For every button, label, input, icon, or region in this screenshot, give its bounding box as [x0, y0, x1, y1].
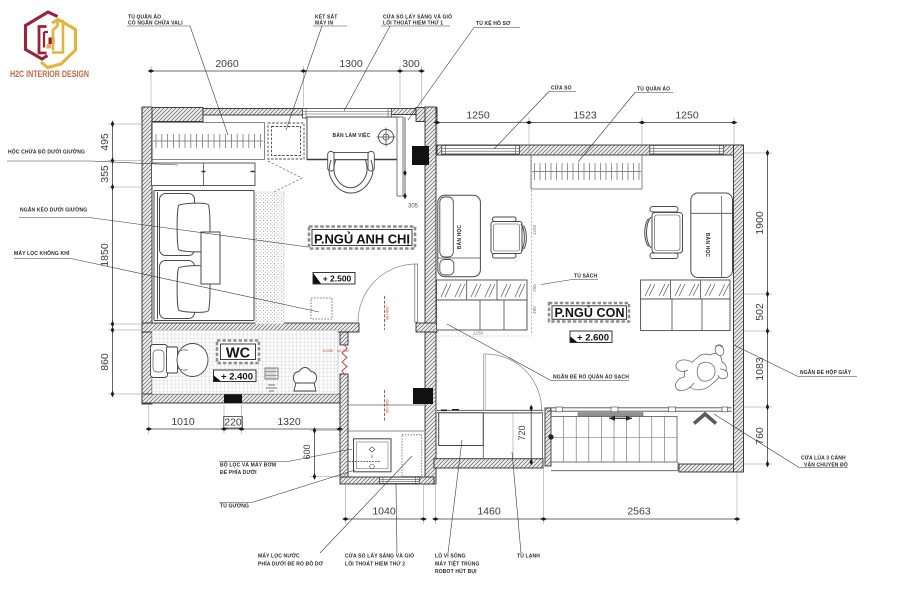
svg-text:CÓ NGĂN CHỨA VALI: CÓ NGĂN CHỨA VALI	[128, 19, 183, 27]
svg-text:MÁY LỌC KHÔNG KHÍ: MÁY LỌC KHÔNG KHÍ	[14, 249, 70, 257]
svg-text:HỘC CHỨA ĐỒ DƯỚI GIƯỜNG: HỘC CHỨA ĐỒ DƯỚI GIƯỜNG	[8, 148, 85, 156]
svg-text:ROBOT HÚT BỤI: ROBOT HÚT BỤI	[435, 568, 477, 575]
svg-text:720: 720	[517, 425, 527, 440]
svg-text:MÁY TIỆT TRÙNG: MÁY TIỆT TRÙNG	[435, 560, 480, 568]
svg-text:2060: 2060	[215, 58, 239, 70]
svg-text:ĐỂ PHÍA DƯỚI: ĐỂ PHÍA DƯỚI	[220, 468, 257, 476]
svg-text:2563: 2563	[627, 506, 651, 518]
svg-text:1200: 1200	[532, 224, 537, 235]
svg-text:TỦ GƯƠNG: TỦ GƯƠNG	[220, 503, 249, 510]
svg-text:+ 2.500: + 2.500	[323, 274, 352, 284]
svg-text:1083: 1083	[754, 357, 766, 381]
svg-text:VẬN CHUYỂN ĐỒ: VẬN CHUYỂN ĐỒ	[804, 462, 848, 469]
svg-text:BỘ LỌC VÀ MÁY BƠM: BỘ LỌC VÀ MÁY BƠM	[220, 461, 276, 469]
svg-text:220: 220	[224, 417, 242, 429]
svg-text:1850: 1850	[99, 243, 111, 267]
svg-text:CỬA LÙA 3 CÁNH: CỬA LÙA 3 CÁNH	[801, 455, 846, 462]
svg-text:CỬA SỔ: CỬA SỔ	[551, 85, 572, 92]
svg-text:BÀN HỌC: BÀN HỌC	[456, 225, 463, 250]
svg-text:1040: 1040	[372, 506, 396, 518]
svg-text:P.NGỦ ANH CHỊ: P.NGỦ ANH CHỊ	[314, 232, 410, 247]
svg-text:860: 860	[99, 353, 111, 371]
svg-text:TỦ SÁCH: TỦ SÁCH	[574, 273, 598, 280]
svg-text:H2C INTERIOR DESIGN: H2C INTERIOR DESIGN	[10, 69, 89, 79]
svg-text:LỐI THOÁT HIỂM THỨ 1: LỐI THOÁT HIỂM THỨ 1	[383, 20, 443, 27]
svg-text:1010: 1010	[171, 416, 195, 428]
svg-text:TỦ KỆ HỒ SƠ: TỦ KỆ HỒ SƠ	[476, 19, 511, 27]
svg-text:355: 355	[99, 165, 111, 183]
svg-text:BÀN HỌC: BÀN HỌC	[704, 233, 711, 258]
svg-text:305: 305	[408, 204, 419, 210]
svg-text:250: 250	[532, 284, 537, 292]
svg-text:KÉT SẮT: KÉT SẮT	[315, 13, 337, 21]
svg-text:LÒ VI SÓNG: LÒ VI SÓNG	[435, 552, 466, 560]
svg-text:1320: 1320	[277, 416, 301, 428]
svg-text:1900: 1900	[754, 211, 766, 235]
svg-text:TỦ QUẦN ÁO: TỦ QUẦN ÁO	[637, 86, 670, 93]
svg-text:502: 502	[754, 303, 766, 321]
svg-text:+ 2.600: + 2.600	[577, 332, 609, 343]
svg-text:PHÍA DƯỚI ĐỂ RỔ ĐỒ DƠ: PHÍA DƯỚI ĐỂ RỔ ĐỒ DƠ	[258, 560, 324, 568]
svg-text:MÁY IN: MÁY IN	[315, 20, 334, 27]
svg-text:-0.035: -0.035	[322, 349, 333, 353]
svg-text:P.NGỦ CON: P.NGỦ CON	[555, 305, 625, 320]
svg-text:495: 495	[99, 133, 111, 151]
svg-text:TỦ QUẦN ÁO: TỦ QUẦN ÁO	[128, 14, 161, 21]
svg-text:ĐH 600: ĐH 600	[386, 400, 390, 413]
svg-text:1460: 1460	[477, 506, 501, 518]
svg-text:MÁY LỌC NƯỚC: MÁY LỌC NƯỚC	[258, 552, 300, 560]
svg-text:CỬA SỔ LẤY SÁNG VÀ GIÓ: CỬA SỔ LẤY SÁNG VÀ GIÓ	[345, 552, 414, 560]
svg-text:1250: 1250	[473, 331, 484, 336]
svg-text:LỐI THOÁT HIỂM THỨ 2: LỐI THOÁT HIỂM THỨ 2	[345, 561, 405, 568]
svg-text:1523: 1523	[573, 110, 597, 122]
svg-text:+ 2.400: + 2.400	[221, 371, 253, 382]
svg-text:1300: 1300	[339, 58, 363, 70]
svg-text:ĐH 600: ĐH 600	[386, 307, 390, 320]
svg-text:1250: 1250	[675, 110, 699, 122]
svg-text:BÀN LÀM VIỆC: BÀN LÀM VIỆC	[333, 131, 371, 139]
svg-text:300: 300	[402, 58, 420, 70]
svg-text:NGĂN KÉO DƯỚI GIƯỜNG: NGĂN KÉO DƯỚI GIƯỜNG	[20, 206, 87, 214]
svg-text:1250: 1250	[466, 110, 490, 122]
svg-text:NGĂN ĐỂ HỘP GIẤY: NGĂN ĐỂ HỘP GIẤY	[800, 368, 852, 376]
svg-text:TỦ LẠNH: TỦ LẠNH	[517, 553, 540, 560]
svg-text:760: 760	[754, 427, 766, 445]
svg-text:WC: WC	[226, 346, 251, 362]
svg-text:±0.000: ±0.000	[337, 349, 349, 353]
svg-text:CỬA SỔ LẤY SÁNG VÀ GIÓ: CỬA SỔ LẤY SÁNG VÀ GIÓ	[383, 13, 452, 21]
svg-text:450: 450	[532, 306, 537, 314]
svg-text:NGĂN ĐỂ RỔ QUẦN ÁO SẠCH: NGĂN ĐỂ RỔ QUẦN ÁO SẠCH	[553, 374, 629, 381]
